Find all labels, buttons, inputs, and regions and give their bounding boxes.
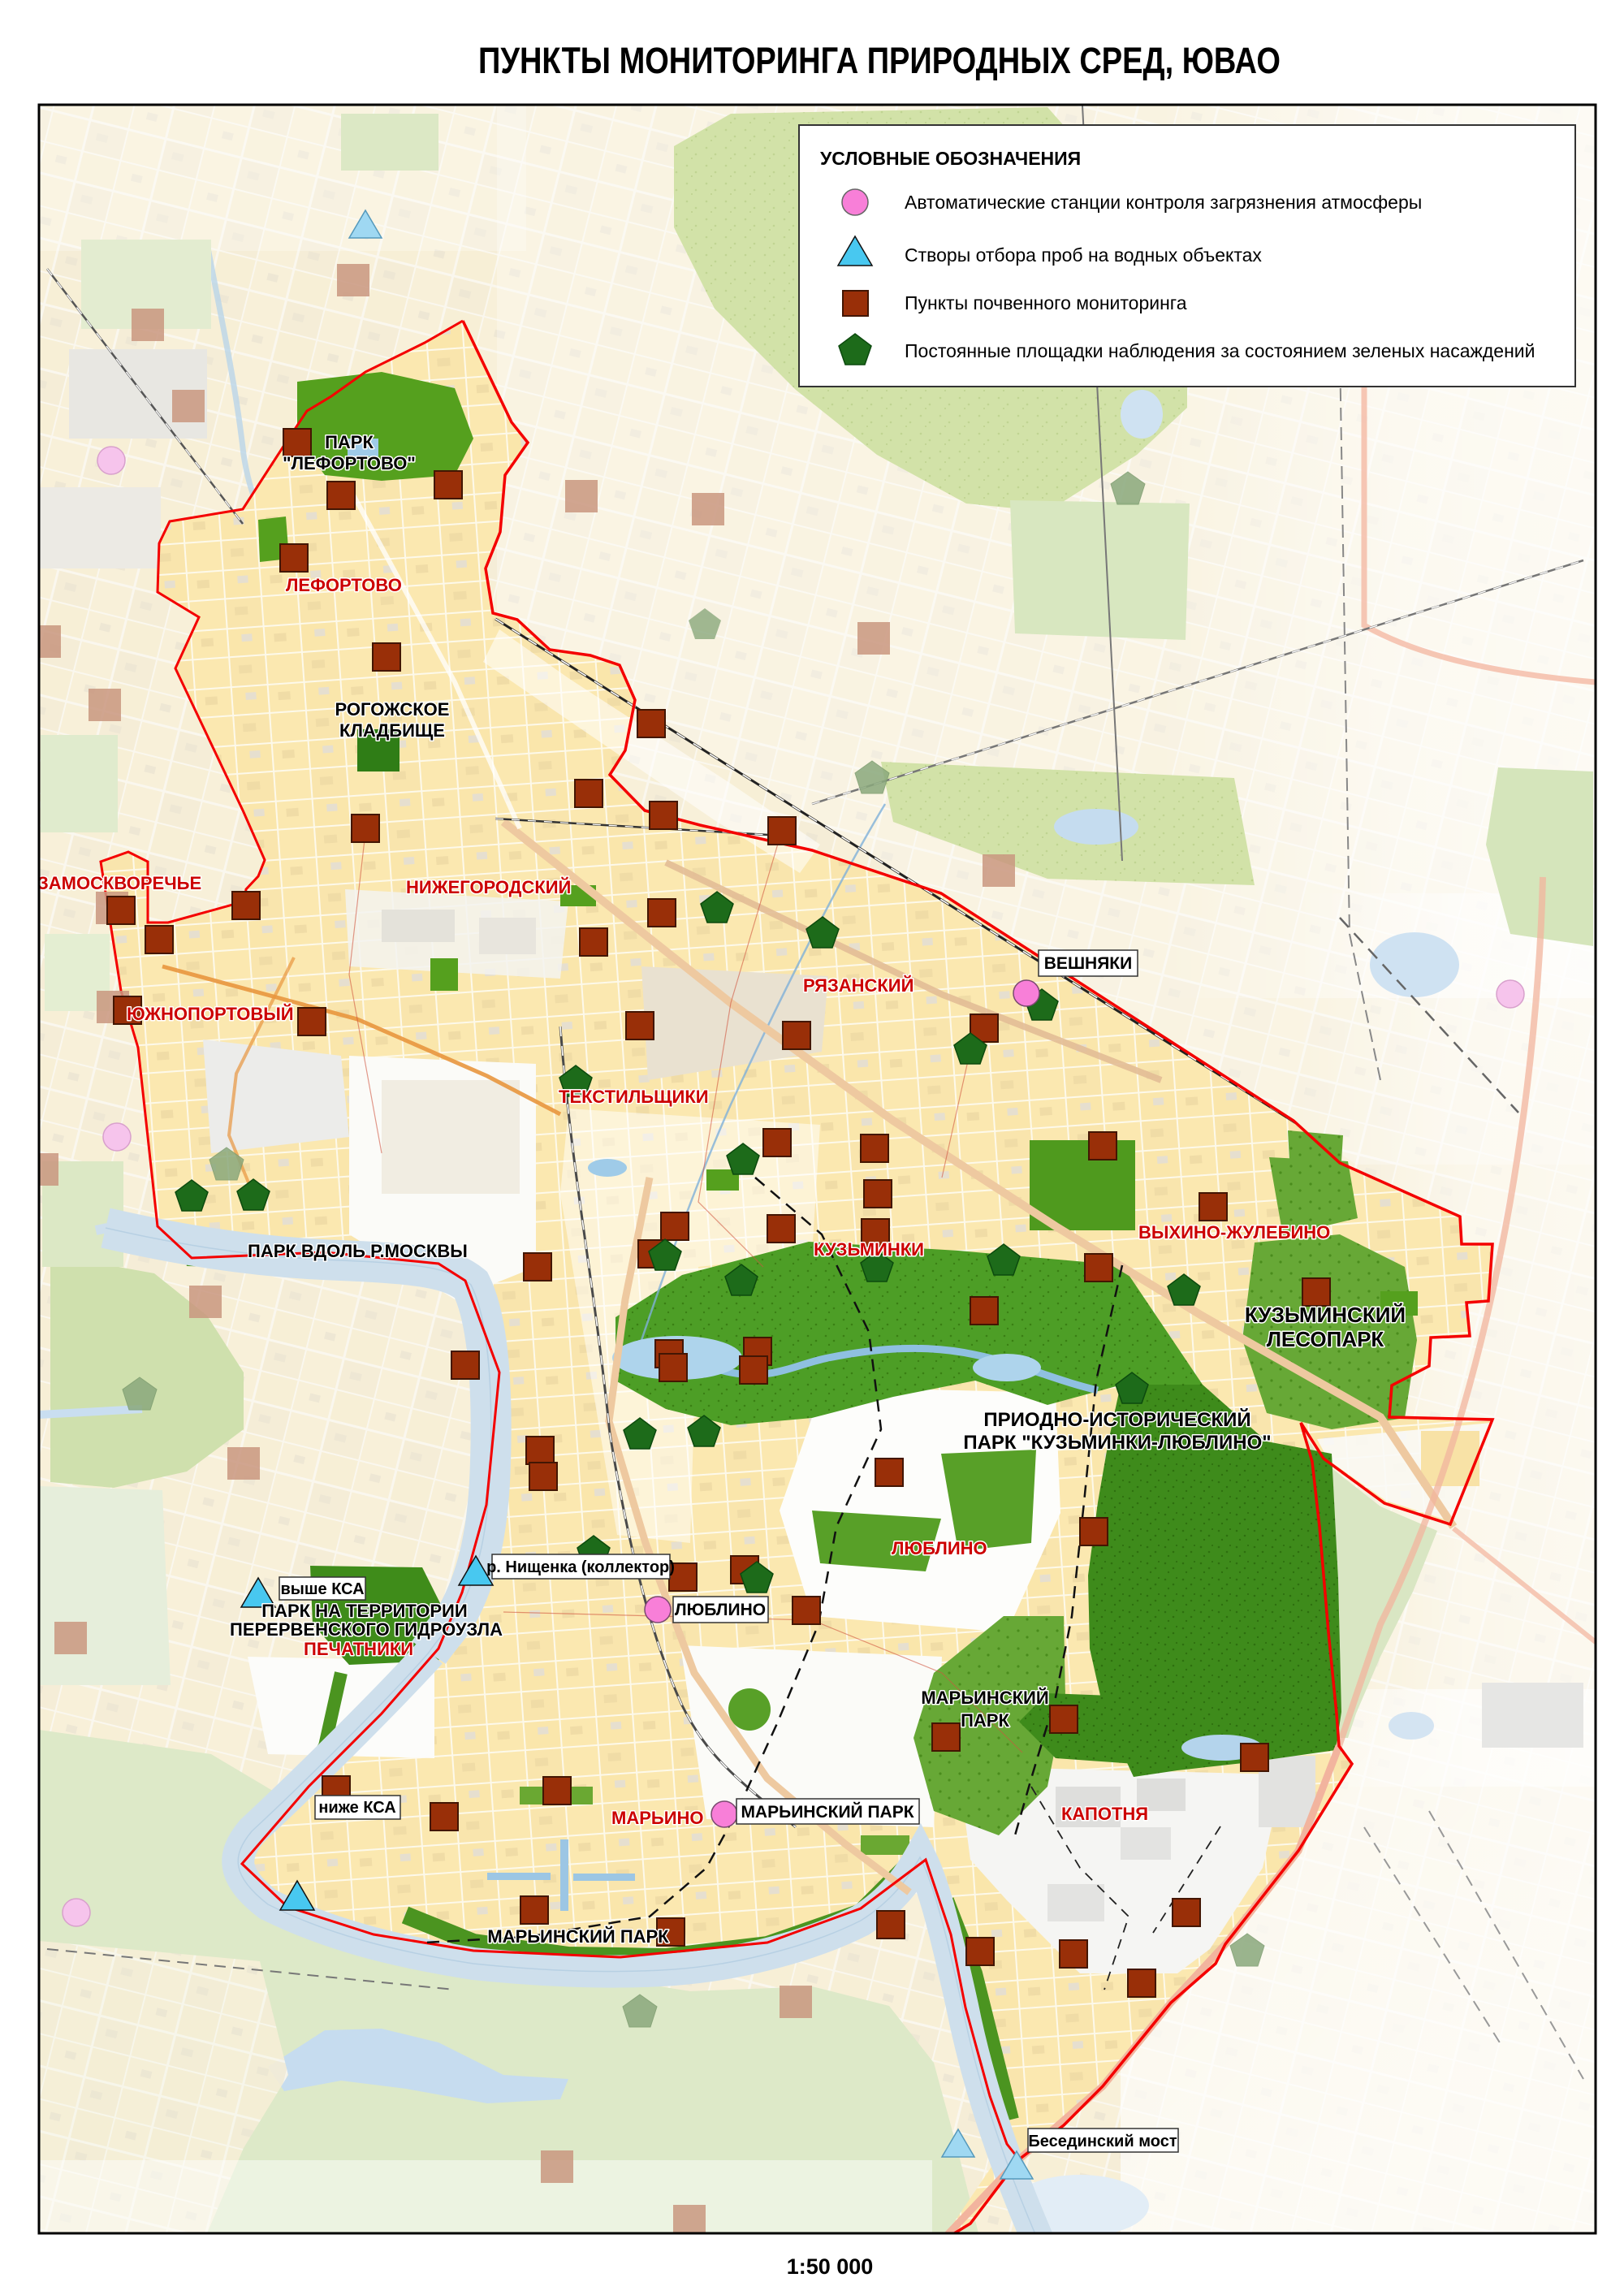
svg-text:ПРИОДНО-ИСТОРИЧЕСКИЙ: ПРИОДНО-ИСТОРИЧЕСКИЙ [983,1408,1250,1431]
svg-text:ПЕРЕРВЕНСКОГО ГИДРОУЗЛА: ПЕРЕРВЕНСКОГО ГИДРОУЗЛА [230,1619,503,1640]
svg-text:ЛЮБЛИНО: ЛЮБЛИНО [675,1601,766,1619]
svg-text:ПЕЧАТНИКИ: ПЕЧАТНИКИ [304,1639,413,1659]
svg-text:КУЗЬМИНСКИЙ: КУЗЬМИНСКИЙ [1245,1303,1406,1327]
svg-text:МАРЬИНО: МАРЬИНО [611,1808,704,1828]
svg-text:РОГОЖСКОЕ: РОГОЖСКОЕ [335,699,450,720]
svg-text:ПАРК ВДОЛЬ Р.МОСКВЫ: ПАРК ВДОЛЬ Р.МОСКВЫ [248,1241,468,1261]
svg-text:р. Нищенка (коллектор): р. Нищенка (коллектор) [486,1558,675,1576]
svg-text:Створы отбора проб на водных о: Створы отбора проб на водных объектах [905,244,1262,266]
svg-text:ПАРК НА ТЕРРИТОРИИ: ПАРК НА ТЕРРИТОРИИ [261,1601,467,1621]
svg-text:КАПОТНЯ: КАПОТНЯ [1061,1804,1148,1824]
svg-text:ЗАМОСКВОРЕЧЬЕ: ЗАМОСКВОРЕЧЬЕ [37,873,201,893]
svg-text:ЛЕСОПАРК: ЛЕСОПАРК [1267,1327,1384,1351]
svg-text:1:50 000: 1:50 000 [787,2254,874,2279]
svg-text:НИЖЕГОРОДСКИЙ: НИЖЕГОРОДСКИЙ [406,877,571,897]
svg-text:РЯЗАНСКИЙ: РЯЗАНСКИЙ [803,975,914,996]
svg-text:ПАРК: ПАРК [961,1710,1009,1731]
svg-text:ЛЕФОРТОВО: ЛЕФОРТОВО [286,575,402,595]
svg-text:ВЕШНЯКИ: ВЕШНЯКИ [1044,954,1132,973]
svg-text:ЛЮБЛИНО: ЛЮБЛИНО [892,1538,987,1558]
svg-text:ТЕКСТИЛЬЩИКИ: ТЕКСТИЛЬЩИКИ [559,1087,709,1107]
svg-text:Пункты почвенного мониторинга: Пункты почвенного мониторинга [905,292,1187,313]
svg-text:"ЛЕФОРТОВО": "ЛЕФОРТОВО" [283,453,416,473]
svg-text:УСЛОВНЫЕ ОБОЗНАЧЕНИЯ: УСЛОВНЫЕ ОБОЗНАЧЕНИЯ [820,148,1081,169]
svg-text:ВЫХИНО-ЖУЛЕБИНО: ВЫХИНО-ЖУЛЕБИНО [1138,1222,1330,1243]
svg-text:КУЗЬМИНКИ: КУЗЬМИНКИ [814,1239,924,1260]
svg-text:КЛАДБИЩЕ: КЛАДБИЩЕ [339,720,445,741]
svg-text:выше КСА: выше КСА [280,1580,364,1598]
svg-text:ЮЖНОПОРТОВЫЙ: ЮЖНОПОРТОВЫЙ [127,1004,294,1024]
svg-text:ниже КСА: ниже КСА [318,1799,395,1817]
svg-text:Постоянные площадки наблюдения: Постоянные площадки наблюдения за состоя… [905,340,1535,361]
svg-text:ПАРК "КУЗЬМИНКИ-ЛЮБЛИНО": ПАРК "КУЗЬМИНКИ-ЛЮБЛИНО" [963,1432,1271,1454]
svg-text:МАРЬИНСКИЙ ПАРК: МАРЬИНСКИЙ ПАРК [741,1802,914,1822]
svg-text:Автоматические станции контрол: Автоматические станции контроля загрязне… [905,192,1422,213]
svg-text:МАРЬИНСКИЙ: МАРЬИНСКИЙ [921,1688,1048,1708]
svg-text:МАРЬИНСКИЙ ПАРК: МАРЬИНСКИЙ ПАРК [487,1926,669,1947]
svg-text:ПУНКТЫ МОНИТОРИНГА ПРИРОДНЫХ С: ПУНКТЫ МОНИТОРИНГА ПРИРОДНЫХ СРЕД, ЮВАО [478,40,1281,81]
svg-text:ПАРК: ПАРК [325,432,374,452]
svg-text:Бесединский мост: Бесединский мост [1028,2133,1177,2150]
